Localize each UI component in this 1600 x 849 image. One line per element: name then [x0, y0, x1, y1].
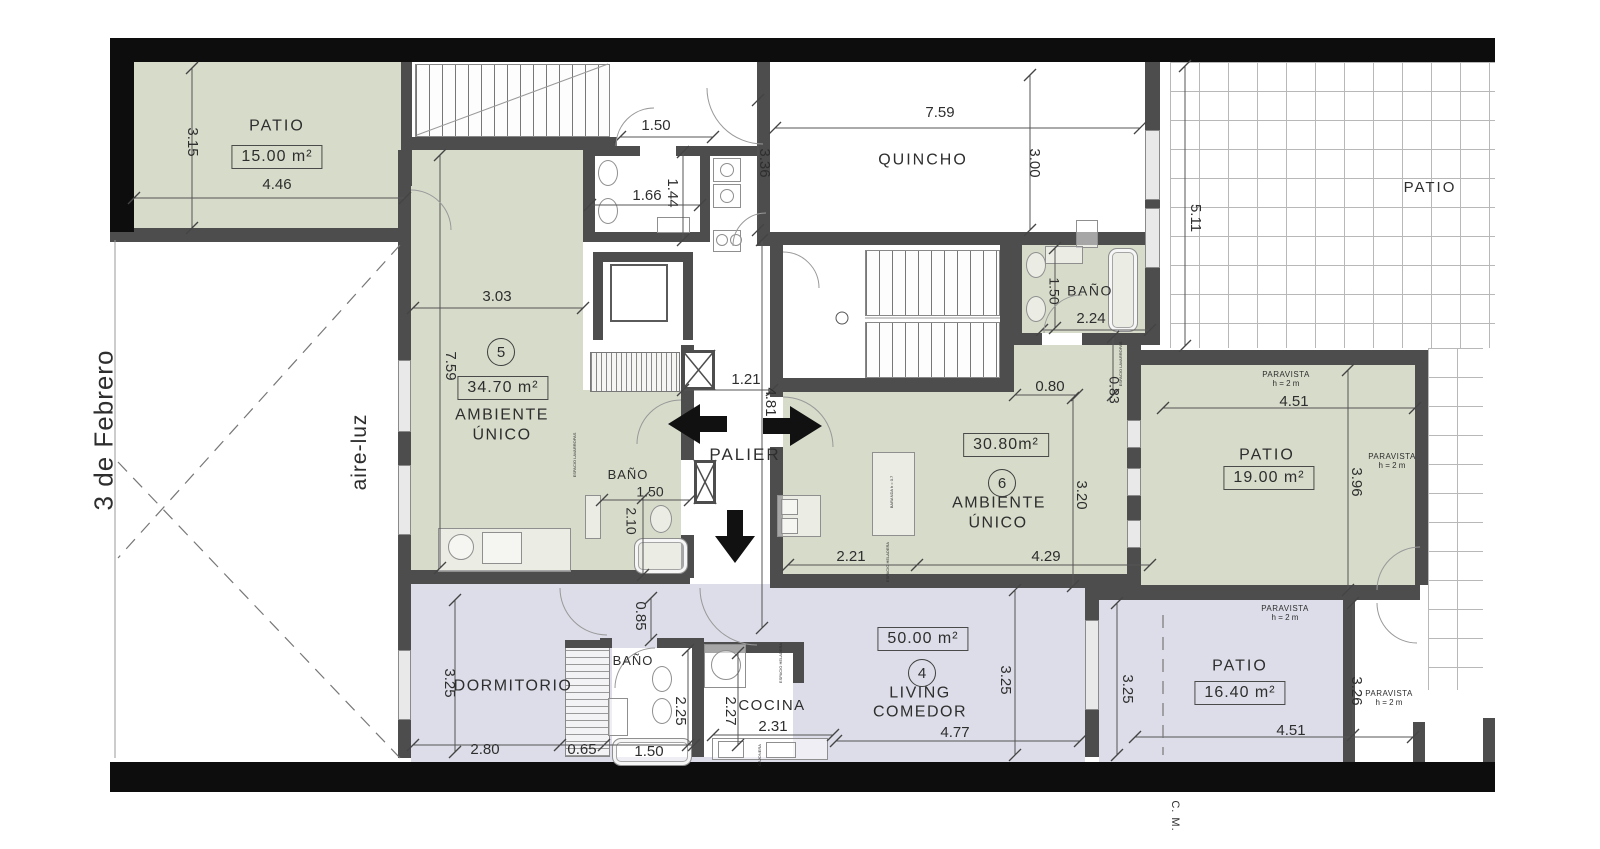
unit-number-6: 6	[988, 469, 1016, 497]
area-unit-5: 34.70 m²	[457, 376, 548, 400]
room-label-bano-unit5: BAÑO	[608, 468, 649, 482]
paravista-3-line2: h = 2 m	[1272, 614, 1299, 622]
door-arc	[560, 588, 607, 635]
dim-living-height: 3.25	[997, 665, 1013, 694]
dim-unit5-height: 7.59	[442, 351, 458, 380]
door-arc	[411, 190, 451, 230]
dim-patio16-width: 4.51	[1276, 723, 1305, 739]
dim-bano4-height: 2.25	[672, 696, 688, 725]
dim-palier-width: 1.21	[731, 372, 760, 388]
cajonera-label: CAJONERA	[758, 744, 762, 766]
dim-bano5-height: 2.10	[624, 507, 639, 534]
dim-unit6-seg1: 2.21	[836, 549, 865, 565]
aire-luz-label: aire-luz	[349, 414, 371, 491]
espacio-heladera-1: ESPACIO HELADERA	[886, 542, 890, 582]
room-label-dormitorio: DORMITORIO	[454, 679, 573, 696]
dim-patio16-left-height: 3.25	[1119, 674, 1135, 703]
room-label-patio-upper-right: PATIO	[1404, 180, 1457, 196]
palier-arrow-left-icon	[668, 404, 727, 444]
dim-patio15-height: 3.15	[184, 127, 200, 156]
room-label-bano-unit4: BAÑO	[613, 654, 654, 668]
area-patio-19: 19.00 m²	[1223, 466, 1314, 490]
dim-quincho-width: 7.59	[925, 105, 954, 121]
room-label-bano-upper: BAÑO	[1067, 284, 1113, 299]
paravista-4-line2: h = 2 m	[1376, 699, 1403, 707]
cm-label: C. M.	[1168, 800, 1180, 831]
dim-unit6-height: 3.20	[1073, 480, 1089, 509]
room-label-cocina: COCINA	[738, 698, 805, 714]
dim-living-width: 4.77	[940, 725, 969, 741]
dim-patio19-height: 3.96	[1348, 467, 1364, 496]
dim-vestibulo: 0.85	[632, 601, 648, 630]
dim-bath-top-width: 1.66	[632, 188, 661, 204]
room-label-patio-16: PATIO	[1212, 659, 1268, 676]
espacio-heladera-2: ESPACIO HELADERA	[779, 643, 783, 683]
unit4-name-line2: COMEDOR	[873, 705, 967, 722]
unit5-name-line1: AMBIENTE	[455, 408, 549, 425]
paravista-1-line2: h = 2 m	[1273, 380, 1300, 388]
espacio-lavarropas-1: ESPACIO LAVARROPAS	[573, 433, 577, 478]
floor-plan: 3 de Febreroaire-luzC. M.PATIOQUINCHOPAT…	[0, 0, 1600, 849]
room-label-quincho: QUINCHO	[878, 153, 968, 170]
area-patio-15: 15.00 m²	[231, 145, 322, 169]
door-arc	[700, 588, 757, 645]
dim-bath-top-height: 1.44	[664, 178, 680, 207]
area-patio-16: 16.40 m²	[1194, 681, 1285, 705]
dim-patio15-width: 4.46	[262, 177, 291, 193]
dim-dormitorio-height: 3.25	[441, 668, 457, 697]
area-unit-6: 30.80m²	[963, 433, 1049, 457]
room-label-patio-19: PATIO	[1239, 448, 1295, 465]
dim-cocina-width: 2.31	[758, 719, 787, 735]
dim-patio-right-height: 5.11	[1187, 204, 1203, 232]
paravista-2-line2: h = 2 m	[1379, 462, 1406, 470]
unit5-name-line2: ÚNICO	[472, 428, 531, 445]
room-label-patio-15: PATIO	[249, 119, 305, 136]
stair-newel	[836, 312, 848, 324]
baranda-label: BARANDA h = 0.7	[890, 476, 894, 509]
dim-unit6-seg2: 4.29	[1031, 549, 1060, 565]
door-arc	[1377, 547, 1420, 590]
dim-unit5-width: 3.03	[482, 289, 511, 305]
unit-number-5: 5	[487, 338, 515, 366]
dim-patio16-height: 3.26	[1348, 676, 1364, 705]
dim-bano6-width: 1.50	[1047, 277, 1062, 304]
dim-unit6-pass-width: 0.80	[1035, 379, 1064, 395]
unit6-name-line1: AMBIENTE	[952, 496, 1046, 513]
street-name: 3 de Febrero	[90, 350, 117, 511]
palier-arrow-down-icon	[715, 510, 755, 563]
dim-dormitorio-width: 2.80	[470, 742, 499, 758]
dim-palier-length: 4.81	[762, 387, 778, 416]
unit4-name-line1: LIVING	[889, 686, 950, 703]
dim-top-door: 1.50	[641, 118, 670, 134]
door-arc	[783, 252, 819, 288]
dim-bano4-width: 1.50	[634, 744, 663, 760]
unit-number-4: 4	[908, 659, 936, 687]
door-arc	[1377, 603, 1417, 643]
dim-bano5-width: 1.50	[636, 485, 663, 500]
dim-corridor: 3.36	[756, 148, 772, 177]
dim-bano6-length: 2.24	[1076, 311, 1105, 327]
dim-placard: 0.65	[567, 742, 596, 758]
door-arc	[707, 88, 763, 144]
unit6-name-line2: ÚNICO	[968, 516, 1027, 533]
dim-quincho-height: 3.00	[1026, 148, 1042, 177]
dimension-lines-layer	[0, 0, 1600, 849]
dim-unit6-pass-height: 0.83	[1107, 376, 1122, 403]
room-label-palier: PALIER	[709, 446, 780, 464]
area-unit-4: 50.00 m²	[877, 627, 968, 651]
dim-patio19-width: 4.51	[1279, 394, 1308, 410]
dim-cocina-height: 2.27	[722, 696, 738, 725]
